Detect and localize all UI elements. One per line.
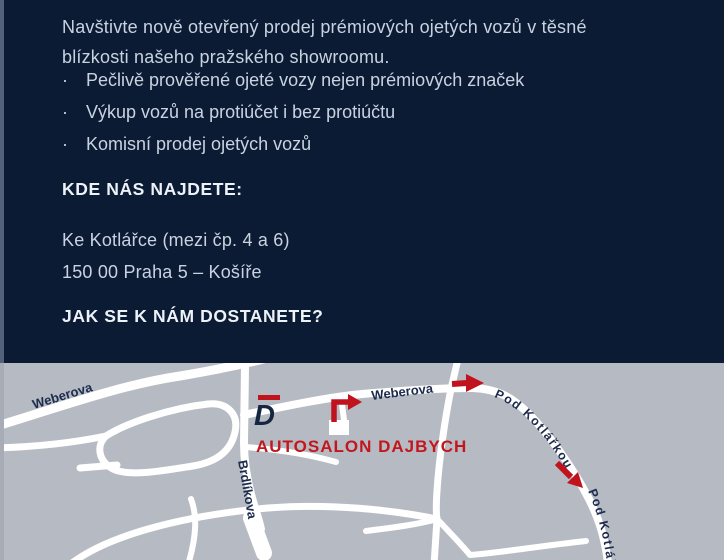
list-item: · Pečlivě prověřené ojeté vozy nejen pré… xyxy=(62,64,662,96)
list-item: · Výkup vozů na protiúčet i bez protiúčt… xyxy=(62,96,662,128)
bullet-list: · Pečlivě prověřené ojeté vozy nejen pré… xyxy=(62,64,662,160)
list-item: · Komisní prodej ojetých vozů xyxy=(62,128,662,160)
road-branch-southeast xyxy=(439,521,586,555)
intro-paragraph: Navštivte nově otevřený prodej prémiovýc… xyxy=(62,12,646,72)
street-label-weberova-east: Weberova xyxy=(371,380,435,403)
road-branch-south xyxy=(434,519,437,560)
bullet-icon: · xyxy=(62,96,86,128)
where-heading: KDE NÁS NAJDETE: xyxy=(62,179,243,200)
road-pod-kotlarkou xyxy=(472,388,612,560)
road-west-connector xyxy=(0,436,106,448)
street-label-pod-kotlarkou-upper-text: Pod Kotlářkou xyxy=(493,387,576,472)
bullet-text: Výkup vozů na protiúčet i bez protiúčtu xyxy=(86,96,395,128)
address-block: Ke Kotlářce (mezi čp. 4 a 6) 150 00 Prah… xyxy=(62,224,290,288)
road-stub-west xyxy=(80,465,117,468)
location-map: Weberova Weberova Pod Kotlářkou Pod Kotl… xyxy=(0,363,724,560)
autosalon-building xyxy=(329,420,349,435)
bullet-icon: · xyxy=(62,64,86,96)
road-small-vertical xyxy=(188,499,195,560)
dealership-name-label: AUTOSALON DAJBYCH xyxy=(256,437,467,456)
map-left-edge xyxy=(0,363,4,560)
how-heading: JAK SE K NÁM DOSTANETE? xyxy=(62,306,323,327)
bullet-text: Pečlivě prověřené ojeté vozy nejen prémi… xyxy=(86,64,524,96)
address-street: Ke Kotlářce (mezi čp. 4 a 6) xyxy=(62,224,290,256)
flyer-page: { "panel": { "intro": "Navštivte nově ot… xyxy=(0,0,724,560)
road-branch-west xyxy=(366,519,437,531)
address-city: 150 00 Praha 5 – Košíře xyxy=(62,256,290,288)
page-left-edge xyxy=(0,0,4,363)
info-panel: Navštivte nově otevřený prodej prémiovýc… xyxy=(0,0,724,363)
bullet-text: Komisní prodej ojetých vozů xyxy=(86,128,311,160)
map-canvas: Weberova Weberova Pod Kotlářkou Pod Kotl… xyxy=(0,363,724,560)
street-label-pod-kotlarkou-lower-text: Pod Kotlářkou xyxy=(585,487,621,560)
street-label-pod-kotlarkou-lower: Pod Kotlářkou xyxy=(585,487,621,560)
bullet-icon: · xyxy=(62,128,86,160)
dajbych-logo-icon: D xyxy=(254,400,275,432)
road-loop xyxy=(100,404,236,473)
street-label-pod-kotlarkou-upper: Pod Kotlářkou xyxy=(493,387,576,472)
